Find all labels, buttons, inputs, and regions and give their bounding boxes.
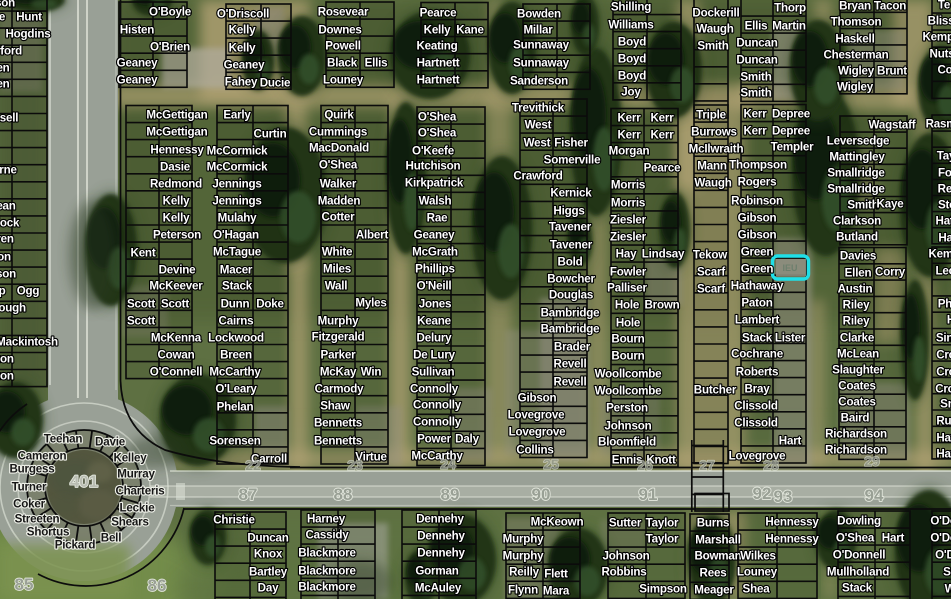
svg-text:Cameron: Cameron [18,449,67,462]
svg-text:Lovegrove: Lovegrove [508,408,566,421]
svg-text:Geaney: Geaney [117,73,158,86]
svg-text:Smith: Smith [740,86,771,99]
svg-text:Hennessy: Hennessy [765,532,819,545]
svg-text:Slaughter: Slaughter [832,363,884,376]
svg-text:Dennehy: Dennehy [417,546,465,559]
svg-text:Shea: Shea [743,582,771,595]
svg-text:Mackintosh: Mackintosh [0,335,58,348]
svg-text:Douglas: Douglas [549,288,593,301]
svg-text:Cassidy: Cassidy [305,528,349,541]
svg-text:Coker: Coker [13,497,46,510]
svg-text:lock: lock [0,216,20,229]
svg-text:Sm: Sm [940,397,951,410]
svg-text:Sind: Sind [936,331,951,344]
svg-text:22: 22 [245,457,261,473]
svg-text:Tavener: Tavener [550,238,593,251]
svg-text:Templer: Templer [771,140,815,153]
svg-text:Johnson: Johnson [603,549,650,562]
svg-text:Bold: Bold [558,255,583,268]
svg-text:McGettigan: McGettigan [146,108,207,121]
svg-text:McAuley: McAuley [415,581,462,594]
svg-text:Woollcombe: Woollcombe [595,367,662,380]
svg-text:Taylor: Taylor [646,516,679,529]
svg-text:Win: Win [361,365,382,378]
svg-text:Reilly: Reilly [509,565,539,578]
svg-text:Scarf: Scarf [697,265,725,278]
svg-text:Johnson: Johnson [605,419,652,432]
svg-text:Millar: Millar [523,23,553,36]
svg-text:Miles: Miles [323,262,351,275]
svg-text:Butcher: Butcher [694,383,737,396]
svg-text:IEU: IEU [782,263,797,273]
svg-text:Hogdins: Hogdins [6,27,51,40]
svg-text:Harney: Harney [307,512,346,525]
svg-text:Gibson: Gibson [738,211,777,224]
svg-text:Thorp: Thorp [774,1,806,14]
svg-text:Bloomfield: Bloomfield [598,435,656,448]
svg-text:en: en [0,77,10,90]
svg-text:Stack: Stack [842,581,873,594]
svg-text:Scott: Scott [161,297,189,310]
svg-text:O'Shea: O'Shea [319,158,358,171]
svg-text:Croc: Croc [936,348,951,361]
svg-text:White: White [322,245,353,258]
svg-text:Dowling: Dowling [837,514,881,527]
svg-text:27: 27 [699,457,715,473]
svg-text:Croc: Croc [936,365,951,378]
svg-text:Cochrane: Cochrane [731,347,784,360]
svg-text:Wigley: Wigley [838,64,875,77]
svg-text:Turner: Turner [12,480,47,493]
svg-text:MacDonald: MacDonald [309,141,369,154]
svg-text:Jones: Jones [419,297,452,310]
svg-text:McGrath: McGrath [412,245,458,258]
svg-text:Parker: Parker [321,348,357,361]
svg-text:Fisher: Fisher [554,136,588,149]
svg-text:Kempt: Kempt [928,247,951,260]
svg-text:Sanderson: Sanderson [510,74,568,87]
svg-text:Flynn: Flynn [508,583,538,596]
svg-text:Kelly: Kelly [163,194,190,207]
svg-text:Revell: Revell [554,357,587,370]
svg-text:Curtin: Curtin [254,127,287,140]
svg-text:90: 90 [532,485,551,504]
svg-text:Ellen: Ellen [845,266,872,279]
svg-text:Lindsay: Lindsay [642,247,685,260]
svg-text:Mulahy: Mulahy [218,211,257,224]
svg-text:McCarthy: McCarthy [209,365,261,378]
svg-text:Paton: Paton [741,296,772,309]
svg-text:Ziesler: Ziesler [610,213,647,226]
svg-text:rne: rne [0,163,17,176]
svg-text:Gibson: Gibson [738,228,777,241]
svg-text:Pearce: Pearce [644,161,682,174]
svg-text:O'Leary: O'Leary [215,382,257,395]
svg-text:O'Shea: O'Shea [418,126,457,139]
svg-text:25: 25 [543,456,559,472]
svg-text:Walker: Walker [320,177,357,190]
svg-text:W: W [945,582,951,595]
svg-text:Lovegrove: Lovegrove [509,425,567,438]
svg-text:Burgess: Burgess [10,462,55,475]
svg-text:Kerr: Kerr [617,128,641,141]
svg-text:Baird: Baird [841,411,870,424]
svg-text:23: 23 [347,457,363,473]
svg-text:Somerville: Somerville [544,153,601,166]
svg-text:Burrows: Burrows [691,125,737,138]
svg-text:Rasm: Rasm [926,117,951,130]
svg-text:Knox: Knox [254,547,283,560]
svg-text:Connolly: Connolly [413,415,462,428]
svg-text:Crawford: Crawford [513,169,562,182]
svg-text:Cowan: Cowan [157,348,194,361]
svg-text:on: on [0,250,11,263]
svg-text:Ducie: Ducie [260,76,291,89]
svg-text:Hathaway: Hathaway [731,279,784,292]
svg-text:Burns: Burns [697,516,730,529]
svg-text:Sunnaway: Sunnaway [513,38,569,51]
svg-text:De Lury: De Lury [413,348,456,361]
svg-text:Boyd: Boyd [618,52,646,65]
svg-text:Kent: Kent [131,246,156,259]
svg-text:Tekow: Tekow [693,248,728,261]
svg-text:O'Don: O'Don [930,514,951,527]
svg-text:Stack: Stack [742,331,773,344]
svg-text:Kempt: Kempt [922,30,951,43]
svg-text:Madden: Madden [318,194,361,207]
svg-text:Shears: Shears [111,515,148,528]
svg-text:Geaney: Geaney [414,228,455,241]
svg-text:Palliser: Palliser [607,281,647,294]
svg-text:Kelley: Kelley [114,451,148,464]
svg-text:Murray: Murray [117,467,155,480]
svg-text:O'Shea: O'Shea [418,110,457,123]
svg-text:Teehan: Teehan [44,432,83,445]
svg-text:Shaw: Shaw [320,399,351,412]
svg-text:Lambert: Lambert [735,313,780,326]
svg-text:85: 85 [15,575,34,594]
svg-text:McGettigan: McGettigan [146,125,207,138]
svg-text:Han: Han [938,231,951,244]
svg-text:Downes: Downes [318,23,361,36]
svg-text:Duncan: Duncan [247,531,288,544]
svg-text:87: 87 [239,485,258,504]
svg-text:Christie: Christie [213,513,255,526]
svg-text:Quirk: Quirk [324,108,354,121]
svg-text:401: 401 [70,472,98,491]
svg-text:Hunt: Hunt [16,10,42,23]
svg-text:Pearce: Pearce [420,6,458,19]
svg-text:Mara: Mara [543,584,570,597]
svg-text:Meager: Meager [694,583,734,596]
svg-text:Trevithick: Trevithick [512,101,565,114]
svg-text:93: 93 [774,487,793,506]
svg-text:Ellis: Ellis [365,56,388,69]
svg-text:Bliss: Bliss [928,14,951,27]
svg-text:Hath: Hath [936,214,951,227]
svg-text:Powell: Powell [325,39,361,52]
svg-text:Boyd: Boyd [618,35,646,48]
svg-text:Gorman: Gorman [415,564,458,577]
svg-text:McIlwraith: McIlwraith [689,142,744,155]
svg-text:Hart: Hart [882,531,905,544]
svg-text:O'Donnell: O'Donnell [833,548,885,561]
svg-text:Cotter: Cotter [322,210,356,223]
svg-text:Smallridge: Smallridge [827,166,885,179]
svg-text:86: 86 [148,576,167,595]
svg-text:Leversedge: Leversedge [827,134,890,147]
svg-text:Fowler: Fowler [610,265,647,278]
svg-text:Murphy: Murphy [503,532,544,545]
svg-text:28: 28 [763,457,779,473]
svg-text:Roberts: Roberts [736,365,778,378]
svg-text:Phillips: Phillips [415,262,455,275]
svg-text:Blackmore: Blackmore [298,580,356,593]
svg-text:Haw: Haw [936,431,951,444]
svg-text:Higgs: Higgs [553,204,584,217]
svg-text:Sullivan: Sullivan [412,365,455,378]
svg-text:Smith: Smith [697,39,728,52]
svg-text:Bartley: Bartley [249,565,288,578]
svg-text:McTague: McTague [213,245,262,258]
svg-text:Dennehy: Dennehy [416,512,464,525]
svg-text:Ogg: Ogg [17,284,40,297]
svg-text:Bourn: Bourn [611,349,644,362]
svg-text:Brunt: Brunt [877,64,907,77]
svg-text:Bowman: Bowman [694,549,741,562]
svg-text:Woollcombe: Woollcombe [595,384,662,397]
svg-text:Bowden: Bowden [517,7,561,20]
svg-text:Haw: Haw [936,447,951,460]
svg-text:Smallridge: Smallridge [827,182,885,195]
svg-text:Perston: Perston [606,401,648,414]
svg-text:McCormick: McCormick [207,160,268,173]
svg-text:94: 94 [865,486,884,505]
svg-text:Corry: Corry [875,265,906,278]
svg-text:Wagstaff: Wagstaff [869,118,916,131]
svg-text:ren: ren [0,232,14,245]
svg-text:Depree: Depree [772,107,811,120]
svg-text:Fitzgerald: Fitzgerald [312,330,365,343]
svg-text:29: 29 [864,453,880,469]
svg-text:Gibson: Gibson [518,391,557,404]
svg-text:Hutchison: Hutchison [406,159,461,172]
svg-text:e: e [0,10,6,23]
svg-text:McCormick: McCormick [207,144,268,157]
svg-text:Leckie: Leckie [120,501,156,514]
svg-text:Kelly: Kelly [163,211,190,224]
svg-text:Dockerill: Dockerill [692,6,739,19]
svg-text:O'Keefe: O'Keefe [412,144,455,157]
svg-text:H: H [947,313,951,326]
svg-text:Flett: Flett [544,567,568,580]
svg-text:Boyd: Boyd [618,69,646,82]
svg-text:Croc: Croc [935,382,951,395]
svg-text:Bambridge: Bambridge [541,306,601,319]
svg-text:Bowcher: Bowcher [547,272,595,285]
svg-text:Davie: Davie [95,435,126,448]
svg-text:Rus: Rus [936,414,951,427]
svg-text:Geaney: Geaney [224,58,265,71]
svg-text:Clarkson: Clarkson [833,214,881,227]
svg-text:Coates: Coates [838,395,875,408]
svg-text:Shortus: Shortus [27,525,69,538]
svg-text:Rogers: Rogers [738,175,777,188]
svg-text:Murphy: Murphy [318,314,359,327]
svg-text:Coates: Coates [838,379,875,392]
svg-text:Wall: Wall [325,279,348,292]
svg-text:Shilling: Shilling [611,0,651,13]
svg-text:Fos: Fos [938,166,951,179]
svg-text:Blackmore: Blackmore [298,546,356,559]
svg-text:Kelly: Kelly [229,41,256,54]
svg-text:Macer: Macer [220,263,253,276]
svg-text:Myles: Myles [355,296,386,309]
svg-text:Stack: Stack [222,279,253,292]
svg-text:Hole: Hole [616,316,641,329]
svg-text:Robinson: Robinson [731,194,783,207]
svg-text:Tay: Tay [937,149,951,162]
svg-text:Histen: Histen [120,23,154,36]
svg-text:Scott: Scott [127,297,155,310]
svg-text:Blackmore: Blackmore [298,564,356,577]
svg-text:son: son [0,0,15,9]
svg-text:Rees: Rees [700,566,727,579]
svg-text:Connolly: Connolly [413,398,462,411]
svg-text:Redmond: Redmond [150,177,202,190]
svg-text:Riley: Riley [843,314,870,327]
svg-text:Butland: Butland [836,230,878,243]
svg-text:McKenna: McKenna [151,331,202,344]
svg-text:Co: Co [937,63,951,76]
svg-text:O'De: O'De [935,548,951,561]
svg-text:Hartnett: Hartnett [417,73,460,86]
svg-text:Bennetts: Bennetts [314,434,362,447]
svg-text:Kerr: Kerr [743,124,767,137]
svg-text:Devine: Devine [159,263,197,276]
svg-text:Jennings: Jennings [212,194,261,207]
svg-text:Te: Te [938,0,951,11]
svg-text:Kaye: Kaye [877,197,905,210]
svg-text:Bryan: Bryan [839,0,871,12]
svg-text:Phelan: Phelan [217,400,254,413]
svg-text:Hart: Hart [779,434,802,447]
svg-text:Nuts: Nuts [930,47,951,60]
svg-text:McKeown: McKeown [531,515,584,528]
svg-text:Kane: Kane [456,23,484,36]
svg-text:Mattingley: Mattingley [829,150,885,163]
svg-text:Jennings: Jennings [212,177,261,190]
svg-text:Wigley: Wigley [837,80,874,93]
svg-text:Richardson: Richardson [825,427,887,440]
svg-text:89: 89 [441,485,460,504]
svg-text:Williams: Williams [608,18,653,31]
svg-text:McLean: McLean [837,347,879,360]
svg-text:O'Connell: O'Connell [150,365,202,378]
svg-text:Scott: Scott [127,314,155,327]
svg-text:Clissold: Clissold [734,399,778,412]
svg-text:Connolly: Connolly [410,382,459,395]
svg-text:O'Driscoll: O'Driscoll [217,7,269,20]
svg-text:Simpson: Simpson [639,582,687,595]
svg-text:Power: Power [417,432,451,445]
svg-text:Cairns: Cairns [219,314,254,327]
svg-text:Kerr: Kerr [617,111,641,124]
svg-text:Rae: Rae [427,211,448,224]
svg-text:Morgan: Morgan [609,144,650,157]
svg-text:Collins: Collins [516,443,553,456]
svg-text:Bambridge: Bambridge [541,322,601,335]
svg-text:Davies: Davies [840,249,876,262]
svg-text:Kerr: Kerr [650,128,674,141]
svg-text:Chesterman: Chesterman [823,48,888,61]
svg-text:Lister: Lister [775,331,806,344]
svg-text:Black: Black [327,56,358,69]
svg-text:Austin: Austin [838,282,873,295]
svg-text:Dunn: Dunn [221,297,250,310]
svg-text:Pickard: Pickard [55,538,96,551]
svg-text:O'Brien: O'Brien [150,40,190,53]
svg-text:Duncan: Duncan [736,36,777,49]
svg-text:Keating: Keating [416,39,457,52]
svg-text:Waugh: Waugh [694,176,731,189]
svg-text:Kirkpatrick: Kirkpatrick [405,176,464,189]
svg-text:Daly: Daly [455,432,479,445]
svg-text:Sc: Sc [943,565,951,578]
svg-text:Green: Green [741,245,774,258]
svg-text:Hennessy: Hennessy [765,515,819,528]
svg-text:Taylor: Taylor [646,532,679,545]
svg-text:Sto: Sto [938,198,951,211]
svg-text:Clissold: Clissold [734,416,778,429]
svg-text:Early: Early [223,108,251,121]
svg-text:Geaney: Geaney [117,56,158,69]
svg-text:Hole: Hole [615,298,640,311]
svg-text:Waugh: Waugh [696,22,733,35]
svg-text:Murphy: Murphy [503,549,544,562]
svg-text:Phil: Phil [938,297,951,310]
svg-text:Brader: Brader [554,340,591,353]
svg-text:Albert: Albert [356,228,389,241]
svg-text:Doke: Doke [256,297,284,310]
svg-text:26: 26 [637,457,653,473]
svg-text:p: p [0,284,6,297]
svg-text:Bell: Bell [101,531,121,544]
svg-text:Day: Day [258,581,279,594]
svg-text:Smith: Smith [740,70,771,83]
svg-text:Charteris: Charteris [115,484,164,497]
svg-text:ton: ton [0,352,14,365]
svg-text:Ree: Ree [938,182,951,195]
svg-text:O'Boyle: O'Boyle [149,5,192,18]
svg-text:Ziesler: Ziesler [610,230,647,243]
svg-text:Cummings: Cummings [309,125,367,138]
svg-text:ton: ton [0,369,14,382]
svg-text:rough: rough [0,301,26,314]
svg-text:Duncan: Duncan [736,53,777,66]
svg-text:Ellis: Ellis [745,19,768,32]
svg-text:Tavener: Tavener [549,220,592,233]
svg-text:McKeever: McKeever [149,279,203,292]
svg-text:Dasie: Dasie [160,160,191,173]
svg-text:Louney: Louney [323,73,364,86]
svg-text:Scarf: Scarf [697,282,725,295]
svg-text:Robbins: Robbins [602,565,647,578]
svg-text:rford: rford [0,44,22,57]
svg-text:Walsh: Walsh [419,194,452,207]
svg-text:Marshall: Marshall [695,533,740,546]
svg-text:O'Shea: O'Shea [836,531,875,544]
